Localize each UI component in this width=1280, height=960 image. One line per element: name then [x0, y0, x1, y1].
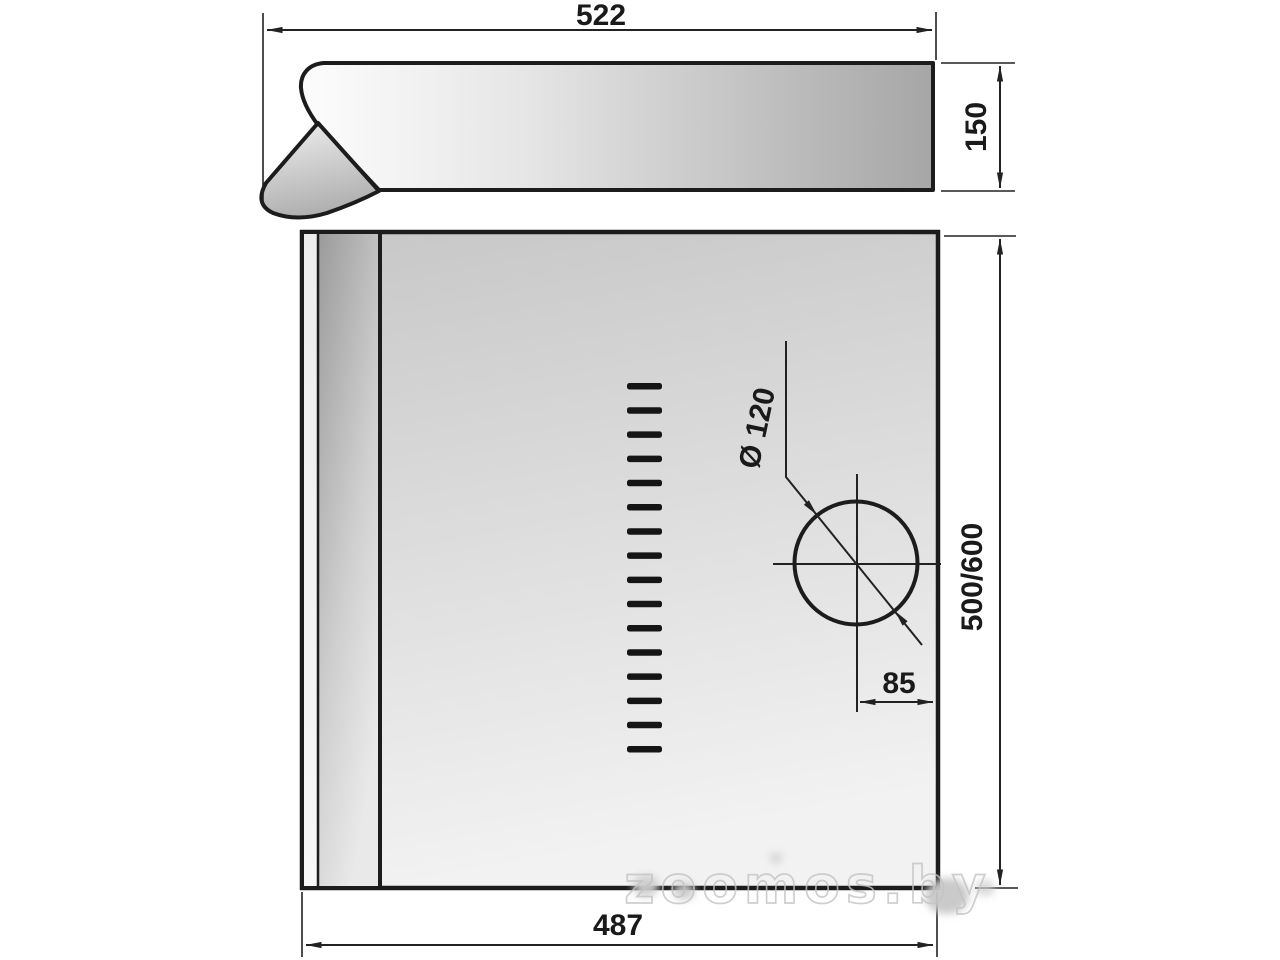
watermark: zoomos.by [624, 852, 995, 916]
drawing-canvas: Ø 120 522 150 500/600 487 85 [0, 0, 1280, 960]
hood-canopy-outline [301, 63, 933, 190]
vent-slot [627, 601, 662, 608]
vent-slot [627, 504, 662, 511]
vent-slot [627, 480, 662, 487]
vent-slot [627, 383, 662, 390]
dim-label-duct-offset: 85 [882, 667, 915, 700]
front-panel [302, 232, 938, 888]
watermark-text: zoomos.by [624, 856, 991, 916]
dim-label-top-width: 522 [576, 0, 626, 32]
vent-slot [627, 577, 662, 584]
vent-slot [627, 431, 662, 438]
side-strip-wide [319, 234, 379, 886]
vent-slot [627, 698, 662, 705]
dim-label-front-height: 500/600 [956, 523, 989, 631]
top-view [261, 63, 933, 218]
vent-slot [627, 673, 662, 680]
vent-slot [627, 722, 662, 729]
vent-slot [627, 625, 662, 632]
vent-slot [627, 649, 662, 656]
technical-drawing: Ø 120 522 150 500/600 487 85 [0, 0, 1280, 960]
vent-slot [627, 456, 662, 463]
vent-slot [627, 746, 662, 753]
vent-slot [627, 552, 662, 559]
front-view [302, 232, 938, 888]
dim-label-top-depth: 150 [960, 102, 993, 152]
side-strip-narrow [304, 234, 317, 886]
vent-slot [627, 407, 662, 414]
vent-slot [627, 528, 662, 535]
